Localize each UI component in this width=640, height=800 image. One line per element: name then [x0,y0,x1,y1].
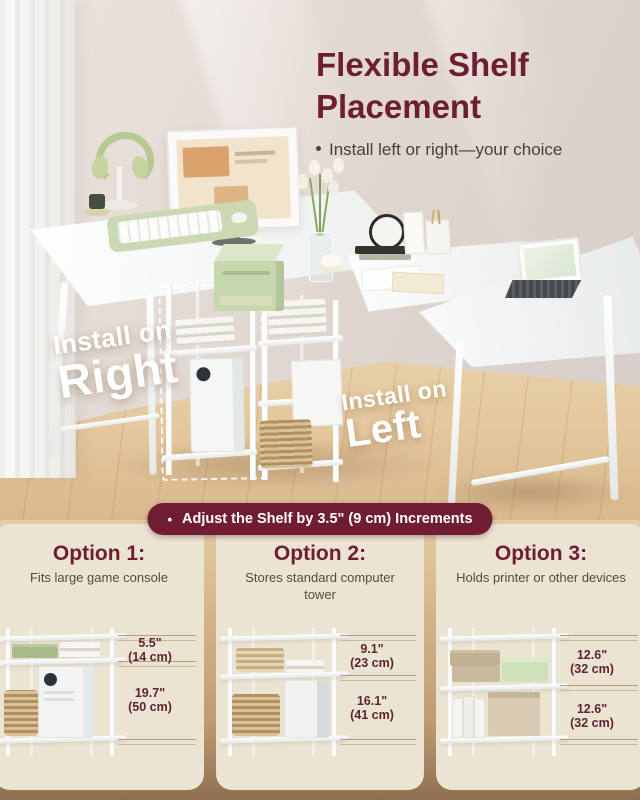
alarm-clock [369,214,405,250]
tulip [328,180,339,195]
option-1-title: Option 1: [0,542,204,566]
fan [44,673,57,686]
shelf-board [220,633,348,641]
headline-block: Flexible Shelf Placement Install left or… [316,44,616,160]
organizer [403,212,425,255]
option-3-title: Option 3: [436,542,640,566]
option-3-measure-1: 12.6" (32 cm) [552,648,632,677]
shelf-board [220,671,348,679]
pencil [437,210,440,224]
option-1-shelf-illustration [0,624,128,769]
measure-inches: 12.6" [577,702,607,716]
coffee-cup [84,194,110,216]
product-infographic: Install on Right Install on Left Flexibl… [0,0,640,800]
bullet-dot [316,146,321,151]
khaki-box [452,666,500,682]
monitor-image-line [235,151,275,156]
cup [89,194,105,209]
dimension-line [118,739,196,745]
option-3-card: Option 3: Holds printer or other devices [436,524,640,790]
options-section: • Adjust the Shelf by 3.5" (9 cm) Increm… [0,520,640,800]
option-2-title: Option 2: [216,542,424,566]
light-book [359,254,411,260]
option-2-desc: Stores standard computer tower [230,570,410,604]
file-organizers [404,208,454,254]
measure-cm: (23 cm) [350,656,394,670]
teacup [318,254,344,272]
measure-inches: 16.1" [357,694,387,708]
laptop-display [523,243,576,280]
measure-cm: (41 cm) [350,708,394,722]
dimension-line [340,635,416,641]
laptop-keyboard [505,280,581,298]
measure-cm: (14 cm) [128,650,172,664]
printer [214,244,296,314]
shelf-board [0,633,126,641]
wicker-basket [4,690,38,736]
dimension-line [560,739,638,745]
option-1-desc: Fits large game console [8,570,190,587]
hero-photo: Install on Right Install on Left Flexibl… [0,0,640,520]
dimension-line [560,635,638,641]
adjustment-banner: • Adjust the Shelf by 3.5" (9 cm) Increm… [147,503,492,535]
option-2-measure-2: 16.1" (41 cm) [332,694,412,723]
printer-top [214,244,284,262]
paper [392,272,445,295]
banner-bullet-dot: • [167,513,172,526]
wicker-basket [232,694,280,736]
sage-box [502,658,548,682]
file-binder [463,696,474,738]
computer-tower [284,680,330,738]
cup [321,254,341,267]
monitor-image-line [235,159,267,164]
headphone-stand [117,166,122,204]
organizer [425,219,451,254]
dimension-line [340,739,416,745]
file-binder [474,698,485,738]
dimension-line [560,685,638,691]
banner-text: Adjust the Shelf by 3.5" (9 cm) Incremen… [182,511,473,527]
khaki-box [450,650,500,666]
dimension-line [340,675,416,681]
tulip [297,174,308,189]
subtitle-text: Install left or right—your choice [329,139,562,160]
laptop [505,240,591,302]
measure-cm: (32 cm) [570,716,614,730]
storage-cube [291,359,343,427]
shelf-board [0,657,126,665]
option-2-shelf-illustration [220,624,350,769]
option-1-measure-1: 5.5" (14 cm) [110,636,190,665]
measure-inches: 19.7" [135,686,165,700]
file-binder [452,698,463,738]
measure-inches: 5.5" [138,636,161,650]
measure-cm: (50 cm) [128,700,172,714]
book-stack [60,642,100,658]
vent-line [44,698,74,701]
vent-line [44,691,74,694]
flat-books [286,660,324,672]
option-3-measure-2: 12.6" (32 cm) [552,702,632,731]
page-title: Flexible Shelf Placement [316,44,616,127]
stem [309,178,319,236]
tulip [309,160,320,175]
option-3-desc: Holds printer or other devices [450,570,632,587]
shelf-post [228,628,233,756]
option-2-measure-1: 9.1" (23 cm) [332,642,412,671]
stem [319,174,321,236]
measure-cm: (32 cm) [570,662,614,676]
canvas-bin [488,692,540,736]
measure-inches: 12.6" [577,648,607,662]
measure-inches: 9.1" [360,642,383,656]
wicker-basket [259,419,313,469]
printer-tray [220,296,272,305]
green-box [12,644,58,658]
monitor-image-block [183,146,230,178]
shelf-board [440,633,568,641]
option-1-card: Option 1: Fits large game console [0,524,204,790]
woven-box [236,648,284,672]
shelf-board [440,683,568,691]
option-3-shelf-illustration [440,624,570,769]
install-on-right-caption: Install on Right [51,316,180,405]
printer-body [214,261,284,311]
game-console-tower [38,666,94,738]
option-1-measure-2: 19.7" (50 cm) [110,686,190,715]
saucer [84,208,110,216]
option-2-card: Option 2: Stores standard computer tower… [216,524,424,790]
subtitle-row: Install left or right—your choice [316,139,616,160]
printer-slot [222,271,270,275]
